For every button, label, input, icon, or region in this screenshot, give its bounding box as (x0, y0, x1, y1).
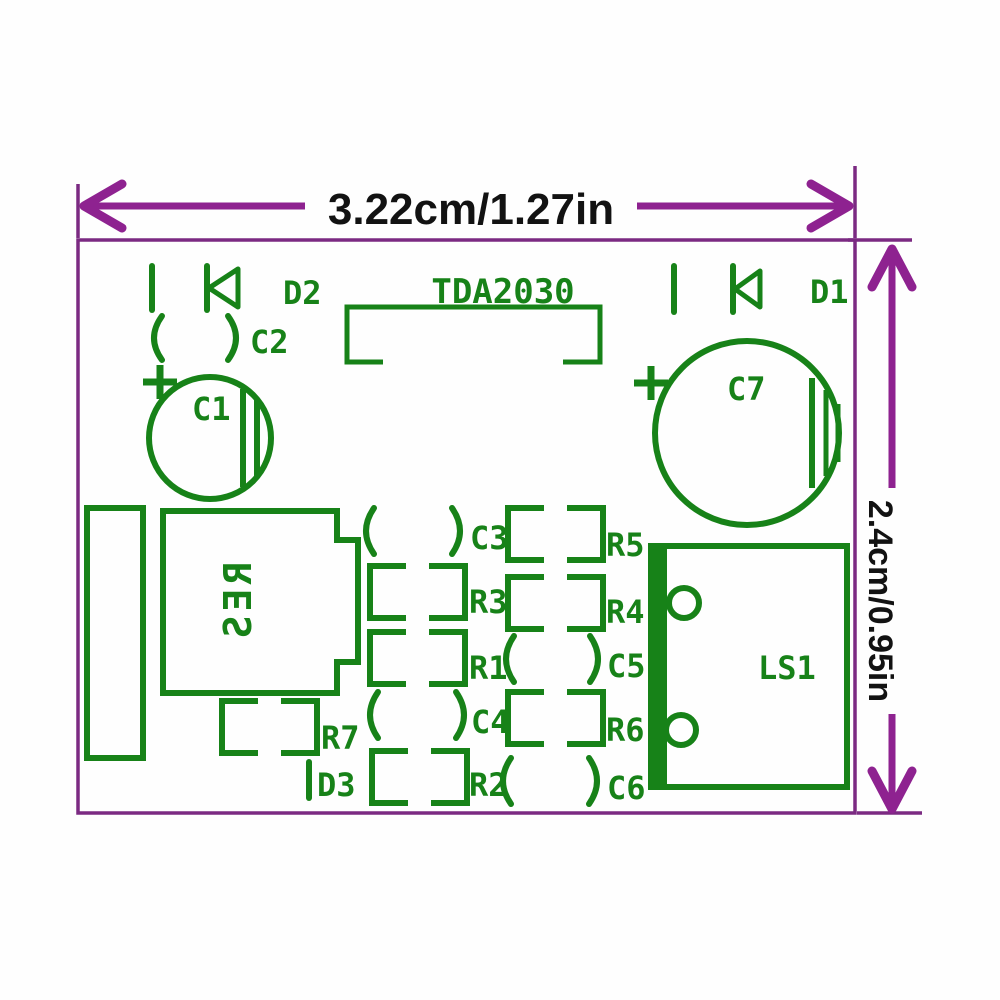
width-dimension-label: 3.22cm/1.27in (328, 185, 614, 234)
resistor-r2-footprint: R2 (372, 751, 508, 804)
diode-d3-footprint: D3 (309, 762, 356, 804)
resistor-r1-right-bracket (429, 632, 465, 684)
capacitor-c2-right-arc (228, 316, 236, 360)
capacitor-c7-footprint: C7 (634, 341, 839, 525)
capacitor-c3-left-arc (366, 508, 374, 554)
diode-d2-triangle-icon (209, 269, 238, 307)
width-dimension: 3.22cm/1.27in (84, 184, 849, 234)
capacitor-c3-right-arc (452, 508, 460, 554)
resistor-r1-left-bracket (370, 632, 406, 684)
capacitor-c1-footprint: C1 (143, 365, 271, 499)
capacitor-c6-footprint: C6 (503, 758, 646, 807)
edge-connector-footprint (87, 508, 143, 758)
capacitor-c3-footprint: C3 (366, 508, 509, 557)
ic-tda2030-outline (347, 307, 600, 362)
capacitor-c6-label: C6 (607, 769, 646, 807)
resistor-r4-label: R4 (606, 593, 645, 631)
capacitor-c4-label: C4 (471, 703, 510, 741)
diode-d1-footprint: D1 (674, 266, 849, 312)
diode-d2-footprint: D2 (152, 266, 322, 312)
capacitor-c2-footprint: C2 (154, 316, 289, 361)
capacitor-c5-left-arc (506, 636, 514, 682)
capacitor-c5-label: C5 (607, 647, 646, 685)
resistor-r1-label: R1 (469, 649, 508, 687)
resistor-r5-footprint: R5 (508, 508, 645, 564)
regulator-res-outline (163, 511, 358, 693)
resistor-r3-footprint: R3 (370, 566, 508, 621)
height-dimension-label: 2.4cm/0.95in (861, 500, 899, 702)
speaker-ls1-footprint: LS1 (650, 543, 847, 789)
capacitor-c3-label: C3 (470, 519, 509, 557)
capacitor-c2-left-arc (154, 316, 162, 360)
capacitor-c1-label: C1 (192, 390, 231, 428)
resistor-r7-footprint: R7 (222, 701, 360, 757)
ic-tda2030-footprint: TDA2030 (347, 272, 600, 362)
resistor-r6-footprint: R6 (508, 692, 645, 749)
capacitor-c5-right-arc (590, 636, 598, 682)
capacitor-c4-footprint: C4 (370, 692, 510, 741)
regulator-res-footprint: RES (163, 511, 358, 693)
resistor-r4-left-bracket (508, 577, 544, 629)
resistor-r1-footprint: R1 (370, 632, 508, 687)
capacitor-c5-footprint: C5 (506, 636, 646, 685)
diode-d3-label: D3 (317, 766, 356, 804)
diode-d1-label: D1 (810, 273, 849, 311)
height-dimension: 2.4cm/0.95in (861, 249, 912, 809)
resistor-r3-left-bracket (370, 566, 406, 618)
resistor-r5-left-bracket (508, 508, 544, 560)
speaker-ls1-outline (651, 546, 847, 787)
resistor-r7-right-bracket (281, 701, 317, 753)
pcb-layout-diagram: 3.22cm/1.27in 2.4cm/0.95in D2 TDA2030 C2… (0, 0, 1000, 1000)
resistor-r6-left-bracket (508, 692, 544, 744)
pcb-layout-svg: 3.22cm/1.27in 2.4cm/0.95in D2 TDA2030 C2… (0, 0, 1000, 1000)
resistor-r4-right-bracket (567, 577, 603, 629)
resistor-r2-left-bracket (372, 751, 408, 803)
resistor-r2-right-bracket (431, 751, 467, 803)
resistor-r4-footprint: R4 (508, 577, 645, 631)
diode-d1-triangle-icon (735, 271, 760, 307)
resistor-r3-label: R3 (469, 583, 508, 621)
resistor-r6-label: R6 (606, 711, 645, 749)
resistor-r6-right-bracket (567, 692, 603, 744)
speaker-ls1-label: LS1 (758, 649, 816, 687)
resistor-r3-right-bracket (429, 566, 465, 618)
resistor-r7-left-bracket (222, 701, 258, 753)
capacitor-c4-left-arc (370, 692, 378, 738)
capacitor-c2-label: C2 (250, 323, 289, 361)
diode-d2-label: D2 (283, 274, 322, 312)
capacitor-c6-right-arc (589, 758, 597, 804)
resistor-r5-right-bracket (567, 508, 603, 560)
speaker-ls1-left-bar (650, 543, 667, 789)
regulator-res-label: RES (216, 562, 260, 643)
capacitor-c7-label: C7 (727, 370, 766, 408)
capacitor-c4-right-arc (456, 692, 464, 738)
speaker-ls1-pad-1 (669, 588, 699, 618)
resistor-r5-label: R5 (606, 526, 645, 564)
speaker-ls1-pad-2 (666, 715, 696, 745)
resistor-r7-label: R7 (321, 719, 360, 757)
